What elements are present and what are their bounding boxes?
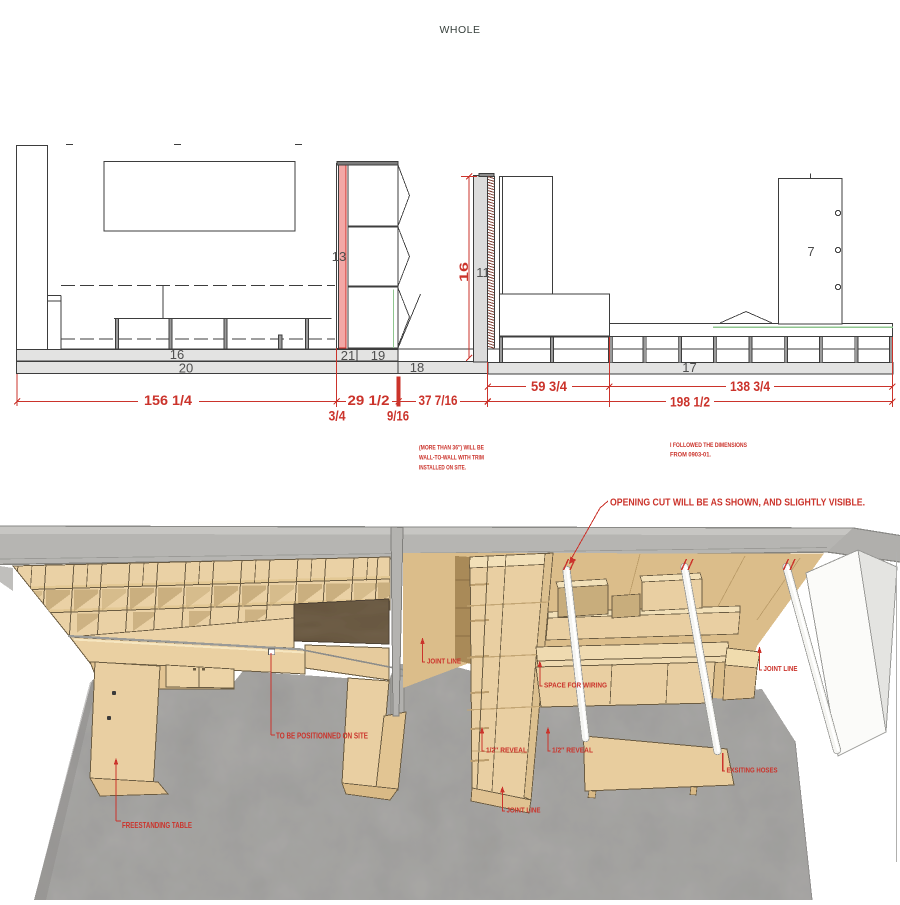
svg-text:SPACE FOR WIRING: SPACE FOR WIRING [544,681,607,690]
svg-text:13: 13 [332,249,346,264]
svg-text:WALL-TO-WALL WITH TRIM: WALL-TO-WALL WITH TRIM [419,455,484,462]
svg-text:19: 19 [371,348,385,363]
svg-text:JOINT LINE: JOINT LINE [427,657,461,666]
svg-text:JOINT LINE: JOINT LINE [764,664,798,673]
svg-text:29 1/2: 29 1/2 [348,393,390,408]
svg-text:3/4: 3/4 [329,409,346,424]
svg-text:21: 21 [341,348,355,363]
svg-text:TO BE POSITIONNED ON SITE: TO BE POSITIONNED ON SITE [276,732,368,741]
svg-text:9/16: 9/16 [387,409,409,424]
svg-text:7: 7 [807,244,814,259]
svg-text:INSTALLED ON SITE.: INSTALLED ON SITE. [419,465,466,472]
svg-text:198 1/2: 198 1/2 [670,395,710,410]
svg-text:37 7/16: 37 7/16 [419,393,458,408]
svg-text:1/2″ REVEAL: 1/2″ REVEAL [552,746,593,755]
svg-text:I FOLLOWED THE DIMENSIONS: I FOLLOWED THE DIMENSIONS [670,442,748,449]
svg-text:1/2″ REVEAL: 1/2″ REVEAL [486,746,527,755]
svg-text:FREESTANDING TABLE: FREESTANDING TABLE [122,821,192,830]
svg-text:(MORE THAN 36″) WILL BE: (MORE THAN 36″) WILL BE [419,445,485,452]
svg-text:JOINT LINE: JOINT LINE [507,806,541,815]
svg-text:OPENING CUT WILL BE AS SHOWN,: OPENING CUT WILL BE AS SHOWN, AND SLIGHT… [610,498,865,509]
svg-text:138 3/4: 138 3/4 [730,379,770,394]
svg-text:17: 17 [682,360,696,375]
svg-text:59 3/4: 59 3/4 [531,379,567,394]
svg-text:EXSITING HOSES: EXSITING HOSES [727,766,778,775]
svg-text:16: 16 [457,262,471,282]
svg-text:18: 18 [410,360,424,375]
svg-text:20: 20 [179,361,193,376]
svg-text:FROM 0903-01.: FROM 0903-01. [670,452,711,459]
svg-text:156 1/4: 156 1/4 [144,393,193,408]
svg-text:11: 11 [476,265,490,280]
svg-text:WHOLE: WHOLE [439,24,480,36]
